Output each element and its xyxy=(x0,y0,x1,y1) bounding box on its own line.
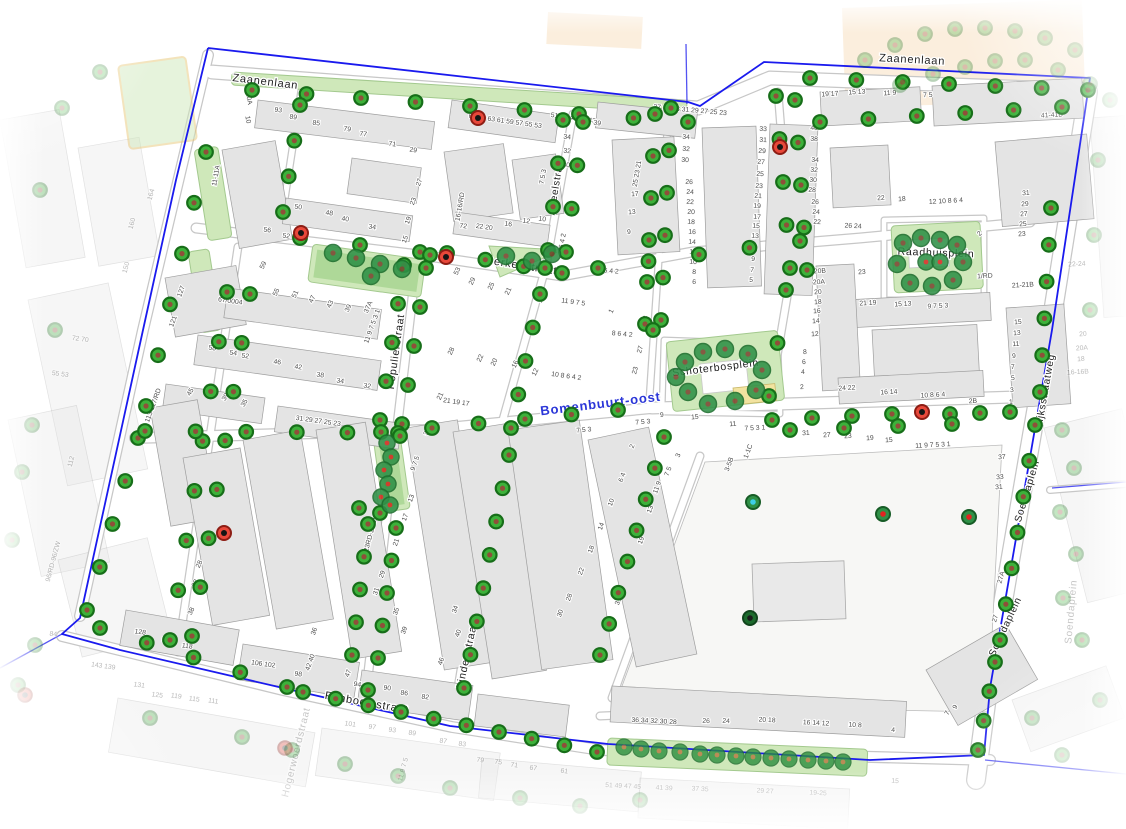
tree-marker[interactable] xyxy=(962,510,976,524)
tree-marker[interactable] xyxy=(325,245,342,262)
tree-marker[interactable] xyxy=(483,548,497,562)
tree-trunk-dot xyxy=(59,105,64,110)
tree-marker[interactable] xyxy=(559,245,573,259)
tree-marker[interactable] xyxy=(245,83,259,97)
tree-marker[interactable] xyxy=(217,526,231,540)
tree-marker[interactable] xyxy=(1005,562,1019,576)
tree-marker[interactable] xyxy=(533,287,547,301)
tree-marker[interactable] xyxy=(1093,693,1107,707)
tree-marker[interactable] xyxy=(639,492,653,506)
tree-marker[interactable] xyxy=(576,115,590,129)
tree-marker[interactable] xyxy=(235,730,249,744)
tree-marker[interactable] xyxy=(202,531,216,545)
tree-marker[interactable] xyxy=(139,399,153,413)
tree-marker[interactable] xyxy=(1053,505,1067,519)
tree-marker[interactable] xyxy=(163,633,177,647)
tree-marker[interactable] xyxy=(555,266,569,280)
tree-marker[interactable] xyxy=(427,712,441,726)
tree-marker[interactable] xyxy=(1067,461,1081,475)
tree-marker[interactable] xyxy=(33,183,47,197)
tree-marker[interactable] xyxy=(773,140,787,154)
tree-marker[interactable] xyxy=(660,186,674,200)
tree-marker[interactable] xyxy=(391,769,405,783)
tree-marker[interactable] xyxy=(642,233,656,247)
tree-marker[interactable] xyxy=(955,254,972,271)
tree-marker[interactable] xyxy=(470,615,484,629)
tree-marker[interactable] xyxy=(518,103,532,117)
tree-marker[interactable] xyxy=(1040,275,1054,289)
tree-marker[interactable] xyxy=(924,278,941,295)
tree-marker[interactable] xyxy=(765,413,779,427)
tree-marker[interactable] xyxy=(590,745,604,759)
tree-marker[interactable] xyxy=(558,739,572,753)
house-number: 8 6 4 2 xyxy=(611,330,633,339)
tree-marker[interactable] xyxy=(385,554,399,568)
tree-trunk-dot xyxy=(29,422,34,427)
tree-marker[interactable] xyxy=(28,638,42,652)
tree-marker[interactable] xyxy=(845,409,859,423)
house-number: 115 xyxy=(188,695,200,703)
tree-marker[interactable] xyxy=(709,747,725,763)
tree-marker[interactable] xyxy=(783,423,797,437)
tree-marker[interactable] xyxy=(476,581,490,595)
tree-marker[interactable] xyxy=(983,685,997,699)
tree-marker[interactable] xyxy=(1003,405,1017,419)
tree-marker[interactable] xyxy=(797,221,811,235)
tree-marker[interactable] xyxy=(1087,228,1101,242)
tree-marker[interactable] xyxy=(423,248,437,262)
tree-marker[interactable] xyxy=(910,109,924,123)
tree-marker[interactable] xyxy=(692,248,706,262)
tree-marker[interactable] xyxy=(504,421,518,435)
tree-marker[interactable] xyxy=(695,344,712,361)
tree-marker[interactable] xyxy=(656,271,670,285)
tree-marker[interactable] xyxy=(235,336,249,350)
tree-trunk-dot xyxy=(365,521,370,526)
tree-trunk-dot xyxy=(487,552,492,557)
tree-marker[interactable] xyxy=(1011,526,1025,540)
tree-marker[interactable] xyxy=(949,237,966,254)
tree-marker[interactable] xyxy=(204,385,218,399)
tree-marker[interactable] xyxy=(288,134,302,148)
tree-marker[interactable] xyxy=(525,732,539,746)
house-number: 31 xyxy=(759,137,767,144)
tree-marker[interactable] xyxy=(646,323,660,337)
tree-marker[interactable] xyxy=(511,388,525,402)
tree-marker[interactable] xyxy=(496,481,510,495)
tree-marker[interactable] xyxy=(999,597,1013,611)
tree-marker[interactable] xyxy=(780,218,794,232)
tree-marker[interactable] xyxy=(556,113,570,127)
tree-marker[interactable] xyxy=(187,651,201,665)
tree-marker[interactable] xyxy=(958,106,972,120)
tree-marker[interactable] xyxy=(616,739,632,755)
tree-marker[interactable] xyxy=(357,550,371,564)
tree-marker[interactable] xyxy=(48,323,62,337)
tree-marker[interactable] xyxy=(193,580,207,594)
tree-marker[interactable] xyxy=(210,483,224,497)
tree-marker[interactable] xyxy=(803,71,817,85)
tree-marker[interactable] xyxy=(513,791,527,805)
tree-marker[interactable] xyxy=(199,145,213,159)
tree-marker[interactable] xyxy=(280,680,294,694)
tree-marker[interactable] xyxy=(401,378,415,392)
tree-marker[interactable] xyxy=(602,617,616,631)
tree-marker[interactable] xyxy=(800,752,816,768)
tree-marker[interactable] xyxy=(680,384,697,401)
tree-marker[interactable] xyxy=(163,298,177,312)
tree-marker[interactable] xyxy=(227,385,241,399)
tree-marker[interactable] xyxy=(294,226,308,240)
tree-marker[interactable] xyxy=(633,741,649,757)
tree-marker[interactable] xyxy=(1007,103,1021,117)
tree-marker[interactable] xyxy=(932,254,948,270)
tree-marker[interactable] xyxy=(519,354,533,368)
tree-marker[interactable] xyxy=(794,178,808,192)
tree-marker[interactable] xyxy=(15,465,29,479)
tree-marker[interactable] xyxy=(391,297,405,311)
tree-marker[interactable] xyxy=(479,253,493,267)
tree-marker[interactable] xyxy=(913,230,930,247)
tree-marker[interactable] xyxy=(648,461,662,475)
tree-marker[interactable] xyxy=(743,241,757,255)
tree-marker[interactable] xyxy=(106,517,120,531)
tree-marker[interactable] xyxy=(338,757,352,771)
tree-marker[interactable] xyxy=(1008,24,1022,38)
tree-marker[interactable] xyxy=(646,149,660,163)
tree-marker[interactable] xyxy=(361,517,375,531)
tree-marker[interactable] xyxy=(876,507,890,521)
tree-marker[interactable] xyxy=(658,228,672,242)
tree-marker[interactable] xyxy=(1044,201,1058,215)
tree-marker[interactable] xyxy=(664,101,678,115)
tree-marker[interactable] xyxy=(644,191,658,205)
tree-marker[interactable] xyxy=(385,336,399,350)
tree-marker[interactable] xyxy=(179,534,193,548)
tree-marker[interactable] xyxy=(1042,238,1056,252)
tree-marker[interactable] xyxy=(593,648,607,662)
tree-marker[interactable] xyxy=(573,799,587,813)
tree-marker[interactable] xyxy=(978,21,992,35)
tree-marker[interactable] xyxy=(1055,748,1069,762)
tree-trunk-dot xyxy=(1012,28,1017,33)
tree-marker[interactable] xyxy=(926,67,940,81)
tree-marker[interactable] xyxy=(187,196,201,210)
tree-trunk-dot xyxy=(397,433,402,438)
tree-marker[interactable] xyxy=(93,621,107,635)
tree-marker[interactable] xyxy=(889,256,906,273)
tree-marker[interactable] xyxy=(1055,423,1069,437)
tree-marker[interactable] xyxy=(1075,633,1089,647)
tree-marker[interactable] xyxy=(754,362,771,379)
tree-marker[interactable] xyxy=(640,275,654,289)
tree-marker[interactable] xyxy=(805,411,819,425)
tree-marker[interactable] xyxy=(341,426,355,440)
tree-marker[interactable] xyxy=(988,54,1002,68)
tree-marker[interactable] xyxy=(371,651,385,665)
tree-marker[interactable] xyxy=(413,300,427,314)
tree-marker[interactable] xyxy=(1022,454,1036,468)
house-number: 15 13 xyxy=(894,301,912,309)
tree-marker[interactable] xyxy=(651,743,667,759)
tree-marker[interactable] xyxy=(276,205,290,219)
tree-marker[interactable] xyxy=(621,555,635,569)
tree-marker[interactable] xyxy=(633,793,647,807)
tree-trunk-dot xyxy=(508,425,513,430)
tree-marker[interactable] xyxy=(175,247,189,261)
tree-marker[interactable] xyxy=(763,750,779,766)
tree-marker[interactable] xyxy=(282,170,296,184)
tree-marker[interactable] xyxy=(672,744,688,760)
tree-marker[interactable] xyxy=(352,501,366,515)
map-canvas[interactable]: 10A109389857977712911-11A505652484034272… xyxy=(0,0,1126,829)
tree-marker[interactable] xyxy=(835,754,851,770)
tree-marker[interactable] xyxy=(353,583,367,597)
tree-marker[interactable] xyxy=(677,354,694,371)
tree-marker[interactable] xyxy=(93,65,107,79)
tree-marker[interactable] xyxy=(362,699,376,713)
tree-marker[interactable] xyxy=(239,425,253,439)
house-number: 15 xyxy=(691,414,699,422)
tree-marker[interactable] xyxy=(1056,591,1070,605)
tree-marker[interactable] xyxy=(544,246,561,263)
tree-marker[interactable] xyxy=(858,53,872,67)
tree-marker[interactable] xyxy=(700,396,717,413)
tree-marker[interactable] xyxy=(354,91,368,105)
tree-marker[interactable] xyxy=(800,263,814,277)
tree-marker[interactable] xyxy=(692,746,708,762)
tree-marker[interactable] xyxy=(779,283,793,297)
tree-marker[interactable] xyxy=(376,619,390,633)
tree-marker[interactable] xyxy=(1038,312,1052,326)
tree-marker[interactable] xyxy=(218,434,232,448)
tree-marker[interactable] xyxy=(380,586,394,600)
tree-marker[interactable] xyxy=(394,261,411,278)
tree-marker[interactable] xyxy=(781,751,797,767)
tree-marker[interactable] xyxy=(788,93,802,107)
tree-marker[interactable] xyxy=(657,430,671,444)
tree-marker[interactable] xyxy=(188,484,202,498)
house-number: 27 xyxy=(823,432,831,439)
tree-marker[interactable] xyxy=(278,741,292,755)
tree-marker[interactable] xyxy=(1068,43,1082,57)
tree-marker[interactable] xyxy=(492,725,506,739)
tree-marker[interactable] xyxy=(565,202,579,216)
tree-marker[interactable] xyxy=(185,629,199,643)
tree-marker[interactable] xyxy=(728,748,744,764)
tree-marker[interactable] xyxy=(502,448,516,462)
tree-marker[interactable] xyxy=(329,692,343,706)
tree-marker[interactable] xyxy=(895,235,912,252)
tree-marker[interactable] xyxy=(1035,348,1049,362)
house-number: 31 xyxy=(995,484,1003,491)
tree-marker[interactable] xyxy=(233,665,247,679)
tree-marker[interactable] xyxy=(793,234,807,248)
tree-marker[interactable] xyxy=(471,111,485,125)
tree-marker[interactable] xyxy=(1038,31,1052,45)
tree-marker[interactable] xyxy=(1103,93,1117,107)
tree-marker[interactable] xyxy=(443,781,457,795)
tree-marker[interactable] xyxy=(776,175,790,189)
tree-marker[interactable] xyxy=(627,111,641,125)
tree-marker[interactable] xyxy=(1018,53,1032,67)
tree-marker[interactable] xyxy=(409,95,423,109)
tree-marker[interactable] xyxy=(611,403,625,417)
tree-marker[interactable] xyxy=(220,285,234,299)
tree-marker[interactable] xyxy=(783,261,797,275)
tree-marker[interactable] xyxy=(293,98,307,112)
tree-marker[interactable] xyxy=(902,275,919,292)
tree-marker[interactable] xyxy=(958,60,972,74)
tree-marker[interactable] xyxy=(891,419,905,433)
tree-marker[interactable] xyxy=(743,611,757,625)
tree-trunk-dot xyxy=(282,745,288,751)
tree-marker[interactable] xyxy=(5,533,19,547)
tree-marker[interactable] xyxy=(464,648,478,662)
tree-marker[interactable] xyxy=(862,112,876,126)
tree-marker[interactable] xyxy=(915,405,929,419)
tree-marker[interactable] xyxy=(988,655,1002,669)
tree-marker[interactable] xyxy=(989,79,1003,93)
tree-marker[interactable] xyxy=(551,157,565,171)
tree-trunk-dot xyxy=(467,103,472,108)
tree-marker[interactable] xyxy=(296,685,310,699)
tree-marker[interactable] xyxy=(143,711,157,725)
tree-marker[interactable] xyxy=(425,421,439,435)
tree-marker[interactable] xyxy=(379,374,393,388)
tree-marker[interactable] xyxy=(348,250,365,267)
tree-marker[interactable] xyxy=(1083,303,1097,317)
tree-marker[interactable] xyxy=(1033,385,1047,399)
tree-marker[interactable] xyxy=(118,474,132,488)
tree-marker[interactable] xyxy=(1028,418,1042,432)
tree-marker[interactable] xyxy=(813,115,827,129)
tree-marker[interactable] xyxy=(171,583,185,597)
tree-marker[interactable] xyxy=(918,27,932,41)
tree-marker[interactable] xyxy=(748,382,765,399)
tree-marker[interactable] xyxy=(945,417,959,431)
tree-marker[interactable] xyxy=(1083,77,1097,91)
tree-marker[interactable] xyxy=(717,341,734,358)
tree-marker[interactable] xyxy=(727,393,744,410)
tree-marker[interactable] xyxy=(345,648,359,662)
tree-marker[interactable] xyxy=(771,336,785,350)
tree-marker[interactable] xyxy=(151,348,165,362)
tree-marker[interactable] xyxy=(546,200,560,214)
tree-marker[interactable] xyxy=(791,136,805,150)
tree-trunk-dot xyxy=(563,249,568,254)
tree-trunk-dot xyxy=(1044,279,1049,284)
tree-marker[interactable] xyxy=(394,705,408,719)
tree-marker[interactable] xyxy=(977,714,991,728)
tree-trunk-dot xyxy=(751,755,756,760)
tree-marker[interactable] xyxy=(769,89,783,103)
house-number: 7 5 3 1 xyxy=(744,424,765,432)
tree-marker[interactable] xyxy=(472,417,486,431)
tree-marker[interactable] xyxy=(460,719,474,733)
tree-marker[interactable] xyxy=(419,261,433,275)
tree-marker[interactable] xyxy=(498,248,515,265)
tree-marker[interactable] xyxy=(524,253,541,270)
tree-marker[interactable] xyxy=(55,101,69,115)
tree-marker[interactable] xyxy=(740,346,757,363)
tree-marker[interactable] xyxy=(745,749,761,765)
tree-marker[interactable] xyxy=(80,603,94,617)
tree-marker[interactable] xyxy=(1055,100,1069,114)
tree-marker[interactable] xyxy=(850,73,864,87)
tree-marker[interactable] xyxy=(212,335,226,349)
tree-marker[interactable] xyxy=(243,287,257,301)
tree-marker[interactable] xyxy=(818,753,834,769)
tree-marker[interactable] xyxy=(526,321,540,335)
tree-marker[interactable] xyxy=(1051,63,1065,77)
tree-marker[interactable] xyxy=(518,412,532,426)
tree-marker[interactable] xyxy=(361,683,375,697)
tree-marker[interactable] xyxy=(571,159,585,173)
map-svg[interactable]: 10A109389857977712911-11A505652484034272… xyxy=(0,0,1126,829)
tree-marker[interactable] xyxy=(611,586,625,600)
tree-marker[interactable] xyxy=(945,272,962,289)
tree-marker[interactable] xyxy=(1091,153,1105,167)
tree-marker[interactable] xyxy=(18,688,32,702)
tree-marker[interactable] xyxy=(489,515,503,529)
tree-marker[interactable] xyxy=(457,681,471,695)
tree-marker[interactable] xyxy=(973,406,987,420)
tree-marker[interactable] xyxy=(1035,81,1049,95)
tree-marker[interactable] xyxy=(893,78,907,92)
tree-marker[interactable] xyxy=(1069,547,1083,561)
tree-marker[interactable] xyxy=(138,424,152,438)
tree-marker[interactable] xyxy=(565,408,579,422)
tree-marker[interactable] xyxy=(668,369,685,386)
tree-marker[interactable] xyxy=(389,521,403,535)
tree-marker[interactable] xyxy=(591,261,605,275)
tree-marker[interactable] xyxy=(932,232,949,249)
tree-marker[interactable] xyxy=(642,254,656,268)
tree-marker[interactable] xyxy=(349,615,363,629)
tree-marker[interactable] xyxy=(1025,711,1039,725)
tree-marker[interactable] xyxy=(942,77,956,91)
tree-trunk-dot xyxy=(378,429,383,434)
tree-trunk-dot xyxy=(417,249,422,254)
tree-marker[interactable] xyxy=(681,115,695,129)
tree-marker[interactable] xyxy=(363,268,380,285)
tree-marker[interactable] xyxy=(290,425,304,439)
tree-marker[interactable] xyxy=(189,425,203,439)
house-number: 79 xyxy=(476,757,485,765)
tree-marker[interactable] xyxy=(140,636,154,650)
tree-marker[interactable] xyxy=(382,497,398,513)
tree-marker[interactable] xyxy=(746,495,760,509)
tree-marker[interactable] xyxy=(1017,490,1031,504)
tree-marker[interactable] xyxy=(948,22,962,36)
tree-marker[interactable] xyxy=(662,144,676,158)
house-number: 21 xyxy=(392,538,401,548)
tree-marker[interactable] xyxy=(888,38,902,52)
tree-marker[interactable] xyxy=(407,339,421,353)
tree-marker[interactable] xyxy=(971,743,985,757)
tree-trunk-dot xyxy=(357,242,362,247)
tree-marker[interactable] xyxy=(648,107,662,121)
tree-marker[interactable] xyxy=(439,250,453,264)
tree-marker[interactable] xyxy=(630,524,644,538)
tree-trunk-dot xyxy=(769,756,774,761)
tree-marker[interactable] xyxy=(93,560,107,574)
tree-marker[interactable] xyxy=(837,421,851,435)
tree-trunk-dot xyxy=(750,499,756,505)
tree-marker[interactable] xyxy=(993,633,1007,647)
tree-marker[interactable] xyxy=(25,418,39,432)
